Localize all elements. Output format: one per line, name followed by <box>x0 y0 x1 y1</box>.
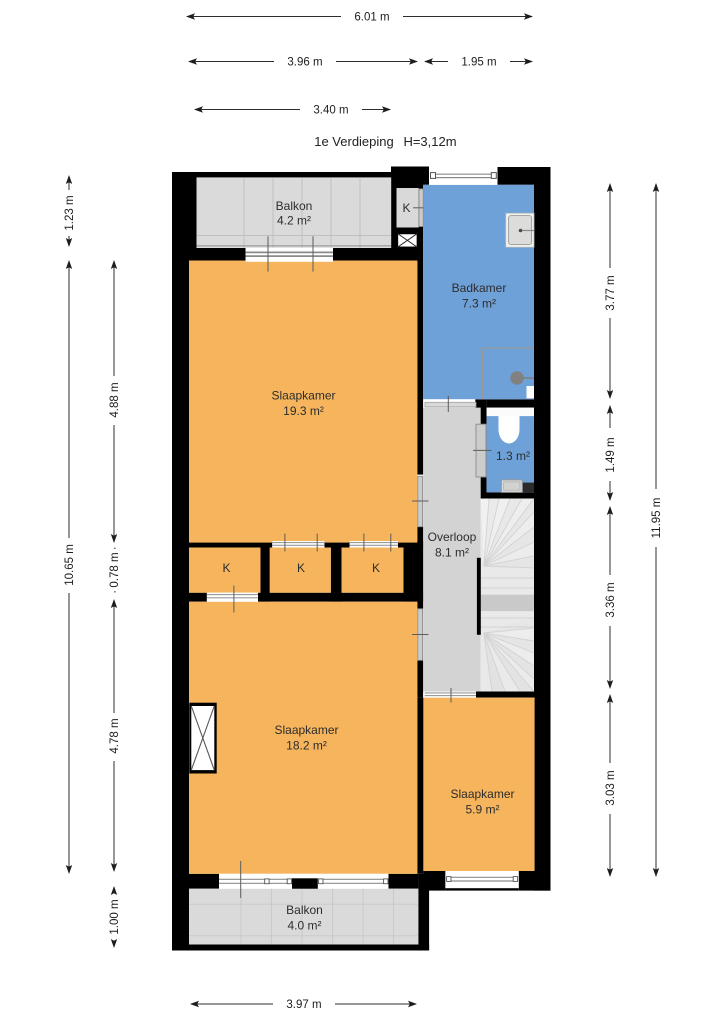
svg-text:K: K <box>222 561 230 575</box>
svg-text:10.65 m: 10.65 m <box>64 544 76 586</box>
svg-text:Balkon: Balkon <box>286 903 323 917</box>
svg-text:3.97 m: 3.97 m <box>286 999 321 1011</box>
svg-text:K: K <box>402 201 410 215</box>
svg-text:6.01 m: 6.01 m <box>354 12 389 24</box>
svg-text:1.23 m: 1.23 m <box>64 195 76 230</box>
svg-text:1e Verdieping: 1e Verdieping <box>314 134 394 149</box>
svg-text:4.0 m²: 4.0 m² <box>287 919 321 933</box>
svg-text:Badkamer: Badkamer <box>452 281 507 295</box>
svg-text:3.36 m: 3.36 m <box>605 582 617 617</box>
svg-text:1.3 m²: 1.3 m² <box>496 449 530 463</box>
svg-text:Overloop: Overloop <box>428 530 477 544</box>
svg-text:18.2 m²: 18.2 m² <box>286 739 327 753</box>
svg-text:8.1 m²: 8.1 m² <box>435 546 469 560</box>
svg-text:4.78 m: 4.78 m <box>109 718 121 753</box>
svg-text:Slaapkamer: Slaapkamer <box>450 787 514 801</box>
svg-text:7.3 m²: 7.3 m² <box>462 297 496 311</box>
svg-text:3.40 m: 3.40 m <box>313 105 348 117</box>
svg-text:1.95 m: 1.95 m <box>461 57 496 69</box>
svg-text:3.96 m: 3.96 m <box>287 57 322 69</box>
svg-text:Slaapkamer: Slaapkamer <box>274 723 338 737</box>
svg-text:K: K <box>297 561 305 575</box>
svg-text:K: K <box>372 561 380 575</box>
svg-text:3.77 m: 3.77 m <box>605 275 617 310</box>
svg-text:5.9 m²: 5.9 m² <box>465 803 499 817</box>
svg-text:· 0.78 m ·: · 0.78 m · <box>109 546 121 593</box>
svg-text:4.88 m: 4.88 m <box>109 382 121 417</box>
svg-text:Slaapkamer: Slaapkamer <box>271 389 335 403</box>
svg-text:Balkon: Balkon <box>276 199 313 213</box>
svg-text:4.2 m²: 4.2 m² <box>277 214 311 228</box>
svg-text:3.03 m: 3.03 m <box>605 770 617 805</box>
svg-text:1.49 m: 1.49 m <box>605 437 617 472</box>
svg-text:H=3,12m: H=3,12m <box>403 134 456 149</box>
svg-text:19.3 m²: 19.3 m² <box>283 404 324 418</box>
svg-text:11.95 m: 11.95 m <box>651 498 663 539</box>
svg-text:1.00 m: 1.00 m <box>109 899 121 934</box>
